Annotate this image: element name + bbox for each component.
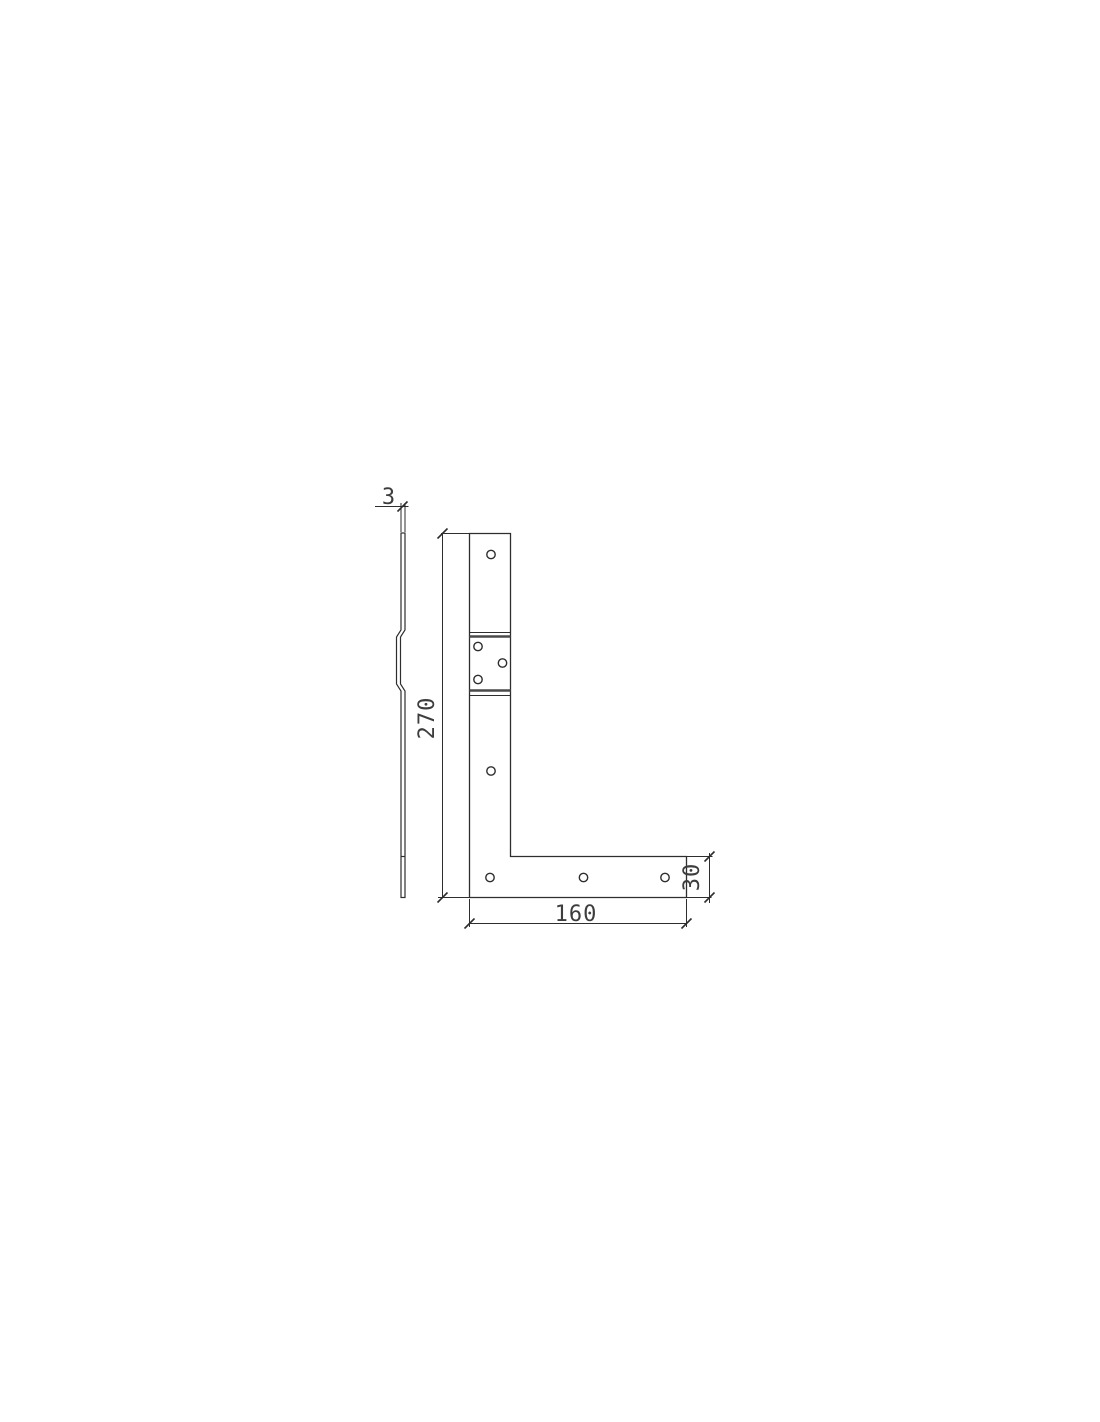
side-profile-left-line [397,533,402,898]
drawing-page: 3 [0,0,1100,1422]
width-dim-label: 160 [555,902,598,927]
front-view [438,534,713,898]
technical-drawing: 3 [0,0,1100,1422]
hole-top [487,550,495,558]
hole-joggle-middle-right [498,659,506,667]
hole-mid-leg [487,767,495,775]
bracket-outline [470,534,687,898]
leg-width-dim-label: 30 [680,863,705,892]
height-dim-label: 270 [415,697,440,740]
leg-width-dimension [705,852,715,904]
hole-bottom-left [486,873,494,881]
hole-bottom-middle [579,873,587,881]
side-profile-view [397,503,406,898]
thickness-dim-label: 3 [382,485,396,510]
hole-joggle-upper-left [474,642,482,650]
hole-joggle-lower-left [474,675,482,683]
hole-bottom-right [661,873,669,881]
holes [474,550,669,881]
